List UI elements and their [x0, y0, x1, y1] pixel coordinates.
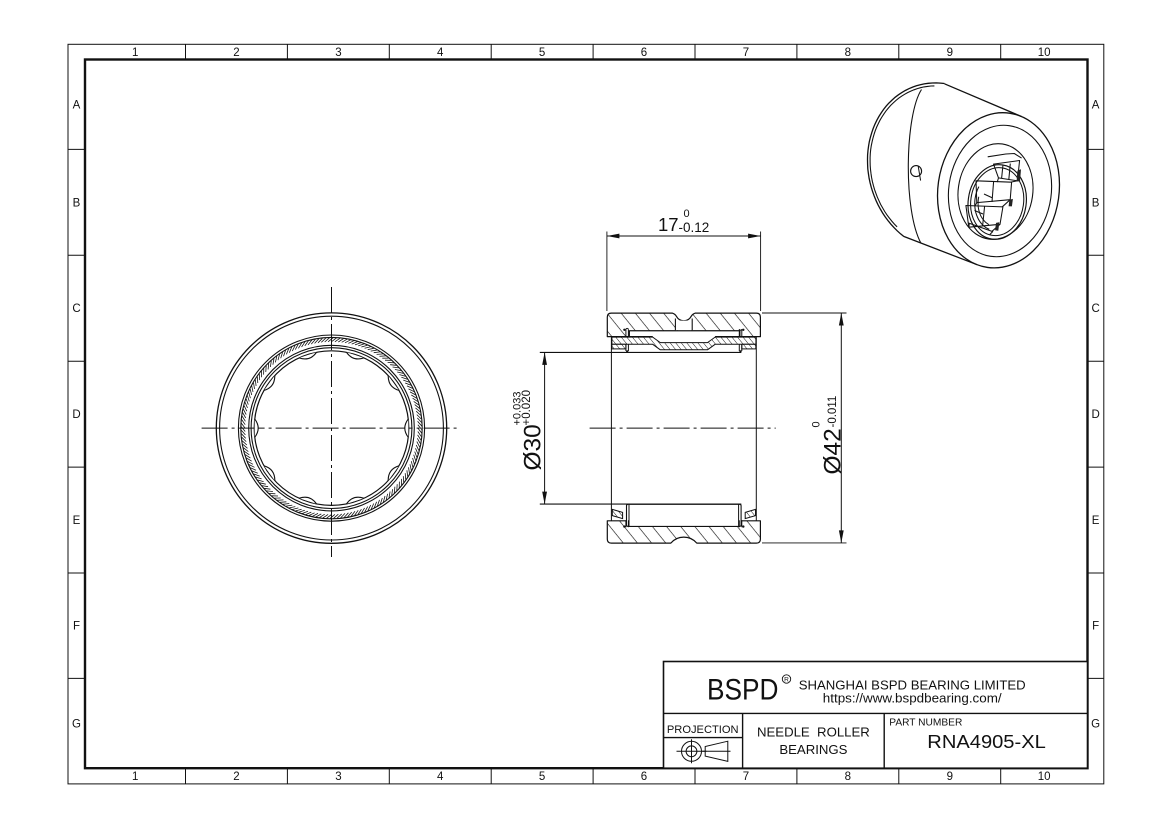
svg-text:1: 1 — [132, 771, 138, 783]
svg-text:0: 0 — [684, 208, 690, 220]
svg-text:PART NUMBER: PART NUMBER — [889, 718, 962, 729]
svg-text:1: 1 — [132, 47, 138, 59]
svg-text:8: 8 — [845, 771, 851, 783]
svg-text:E: E — [73, 515, 81, 527]
svg-text:F: F — [73, 621, 80, 633]
svg-text:R: R — [784, 677, 789, 684]
svg-text:9: 9 — [947, 47, 953, 59]
svg-text:-0.12: -0.12 — [679, 220, 710, 235]
svg-text:C: C — [72, 303, 80, 315]
svg-text:B: B — [1092, 197, 1100, 209]
svg-text:7: 7 — [743, 771, 749, 783]
svg-text:F: F — [1092, 621, 1099, 633]
svg-text:Ø30: Ø30 — [520, 424, 547, 470]
svg-text:7: 7 — [743, 47, 749, 59]
svg-text:A: A — [1092, 100, 1100, 112]
svg-text:Ø42: Ø42 — [820, 428, 847, 474]
svg-text:6: 6 — [641, 771, 647, 783]
svg-text:4: 4 — [437, 47, 444, 59]
svg-text:BEARINGS: BEARINGS — [779, 742, 847, 757]
svg-text:3: 3 — [335, 47, 341, 59]
svg-text:G: G — [1091, 718, 1100, 730]
svg-text:B: B — [73, 197, 81, 209]
svg-text:D: D — [1091, 409, 1099, 421]
svg-text:10: 10 — [1038, 771, 1051, 783]
svg-text:2: 2 — [233, 47, 239, 59]
svg-text:A: A — [73, 100, 81, 112]
svg-text:E: E — [1092, 515, 1100, 527]
svg-text:0: 0 — [811, 421, 823, 427]
svg-text:5: 5 — [539, 771, 545, 783]
svg-text:+0.020: +0.020 — [521, 390, 533, 426]
svg-text:https://www.bspdbearing.com/: https://www.bspdbearing.com/ — [823, 691, 1002, 706]
svg-text:BSPD: BSPD — [707, 674, 779, 707]
svg-text:9: 9 — [947, 771, 953, 783]
svg-text:17: 17 — [658, 214, 679, 235]
svg-text:-0.011: -0.011 — [827, 396, 839, 428]
svg-text:6: 6 — [641, 47, 647, 59]
svg-text:PROJECTION: PROJECTION — [667, 724, 739, 736]
svg-text:3: 3 — [335, 771, 341, 783]
svg-text:C: C — [1091, 303, 1099, 315]
svg-text:G: G — [72, 718, 81, 730]
svg-text:8: 8 — [845, 47, 851, 59]
svg-text:10: 10 — [1038, 47, 1051, 59]
svg-text:D: D — [72, 409, 80, 421]
svg-text:4: 4 — [437, 771, 444, 783]
svg-text:RNA4905-XL: RNA4905-XL — [927, 731, 1046, 752]
svg-text:2: 2 — [233, 771, 239, 783]
svg-text:NEEDLE ROLLER: NEEDLE ROLLER — [757, 724, 870, 739]
svg-text:5: 5 — [539, 47, 545, 59]
